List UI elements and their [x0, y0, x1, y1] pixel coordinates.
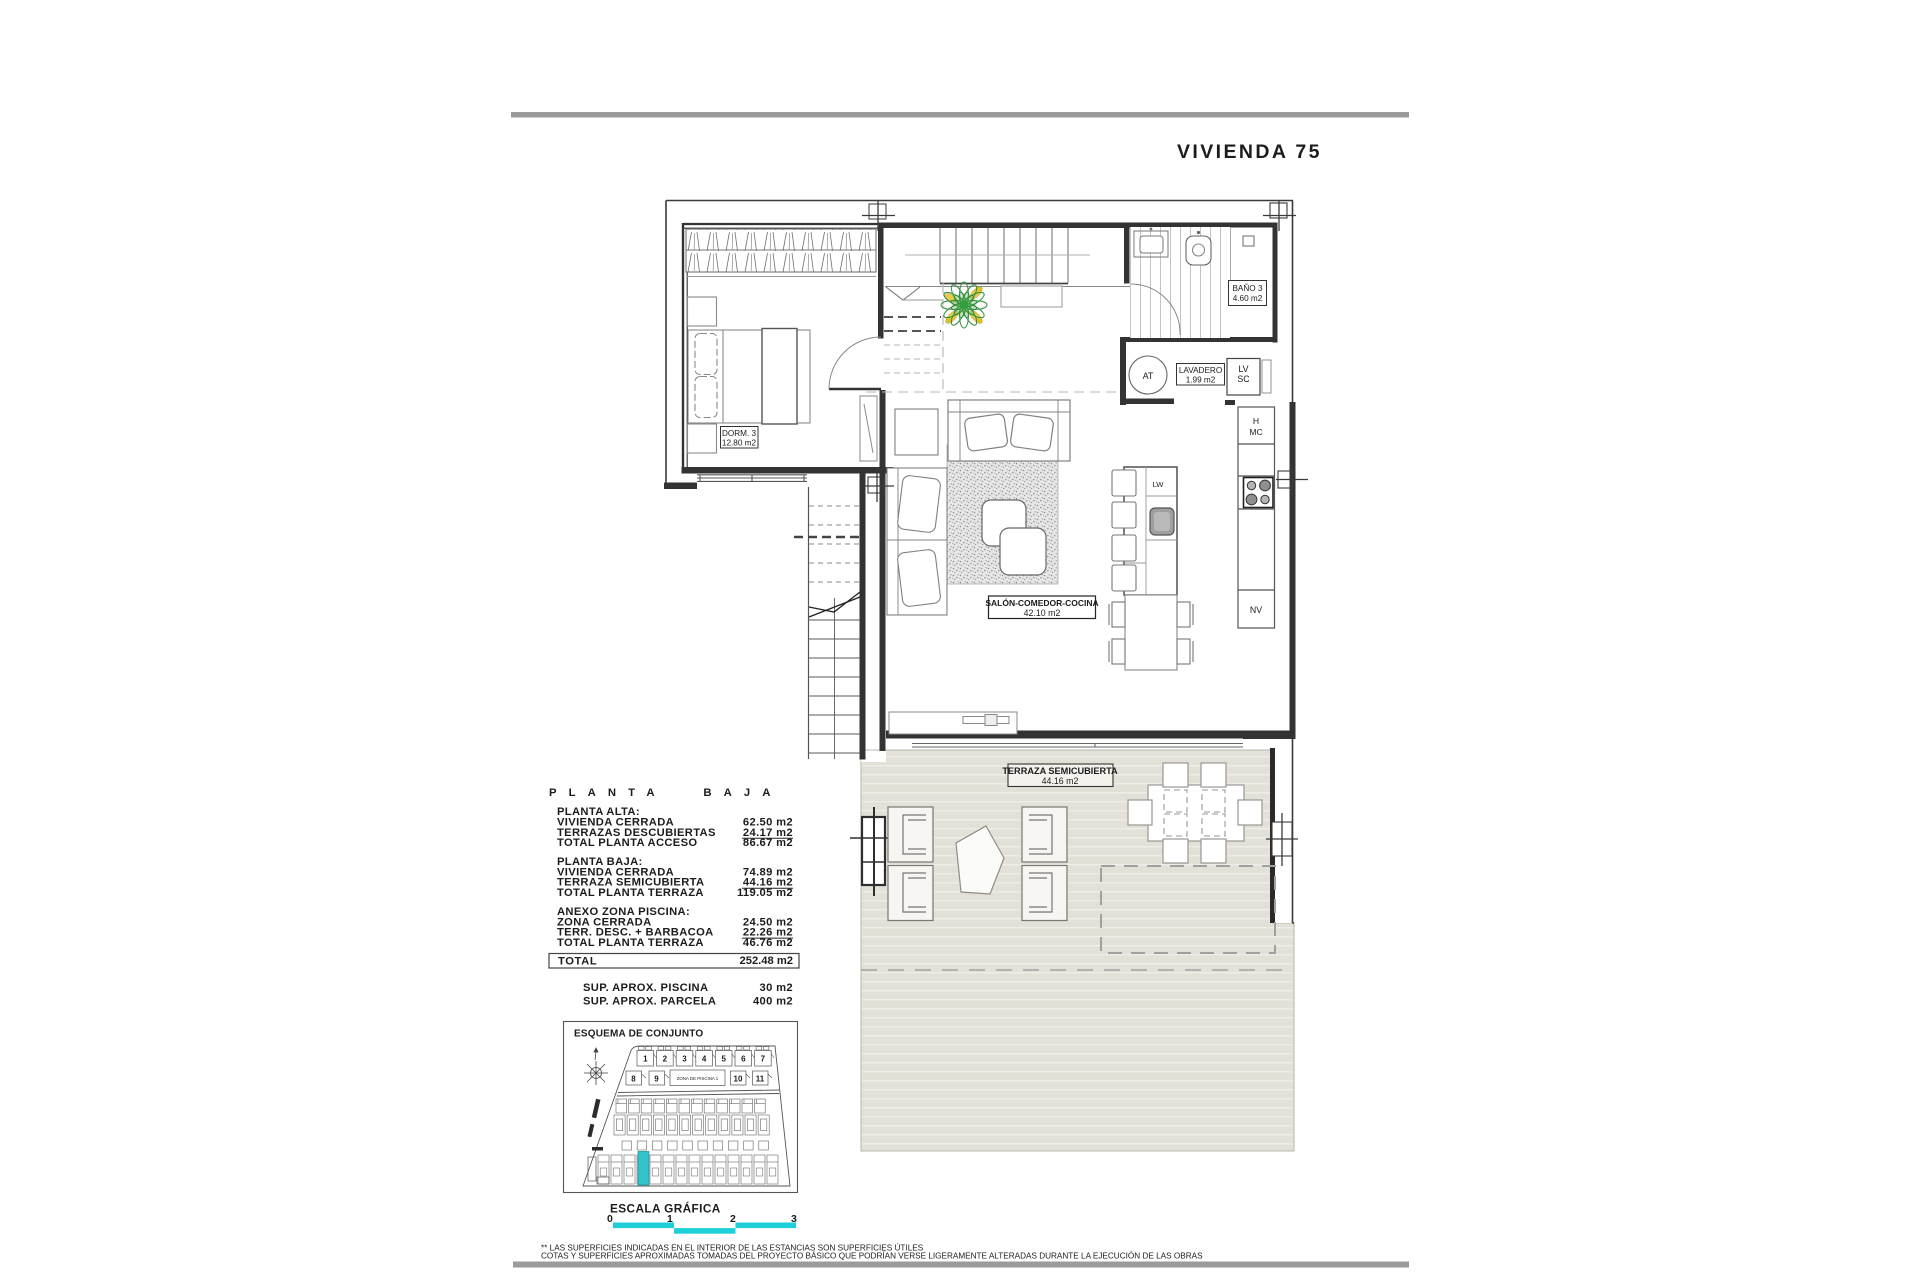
svg-text:252.48 m2: 252.48 m2: [740, 955, 794, 967]
svg-text:7: 7: [761, 1055, 766, 1064]
svg-text:ZONA DE PISCINA 1: ZONA DE PISCINA 1: [677, 1076, 719, 1081]
svg-text:2: 2: [730, 1213, 736, 1225]
svg-text:4.60 m2: 4.60 m2: [1233, 294, 1263, 303]
svg-text:BAÑO 3: BAÑO 3: [1232, 283, 1262, 293]
svg-text:6: 6: [741, 1055, 746, 1064]
svg-text:5: 5: [721, 1055, 726, 1064]
svg-text:44.16 m2: 44.16 m2: [1042, 776, 1079, 786]
svg-text:TOTAL PLANTA ACCESO: TOTAL PLANTA ACCESO: [557, 837, 697, 849]
svg-text:LW: LW: [1153, 480, 1165, 489]
svg-text:PLANTA BAJA: PLANTA BAJA: [549, 787, 783, 799]
svg-text:12.80 m2: 12.80 m2: [722, 439, 757, 448]
svg-text:ESQUEMA DE CONJUNTO: ESQUEMA DE CONJUNTO: [574, 1029, 703, 1040]
svg-text:ESCALA GRÁFICA: ESCALA GRÁFICA: [610, 1202, 721, 1216]
svg-text:9: 9: [654, 1075, 659, 1084]
svg-text:10: 10: [734, 1075, 743, 1084]
svg-text:TOTAL PLANTA TERRAZA: TOTAL PLANTA TERRAZA: [557, 937, 704, 949]
svg-text:SUP. APROX. PARCELA: SUP. APROX. PARCELA: [583, 996, 716, 1008]
svg-text:NV: NV: [1250, 605, 1262, 615]
svg-text:SC: SC: [1237, 374, 1250, 384]
svg-text:SUP. APROX. PISCINA: SUP. APROX. PISCINA: [583, 982, 708, 994]
svg-text:30 m2: 30 m2: [760, 982, 793, 994]
svg-text:3: 3: [682, 1055, 687, 1064]
svg-text:TOTAL: TOTAL: [558, 956, 597, 968]
svg-text:11: 11: [756, 1075, 765, 1084]
svg-text:VIVIENDA 75: VIVIENDA 75: [1177, 141, 1322, 163]
svg-text:1.99 m2: 1.99 m2: [1186, 376, 1216, 385]
svg-text:COTAS Y SUPERFICIES APROXIMADA: COTAS Y SUPERFICIES APROXIMADAS TOMADAS …: [541, 1251, 1203, 1261]
svg-text:2: 2: [663, 1055, 668, 1064]
svg-text:42.10 m2: 42.10 m2: [1024, 608, 1061, 618]
svg-text:LV: LV: [1238, 364, 1248, 374]
svg-text:MC: MC: [1249, 427, 1262, 437]
svg-text:8: 8: [631, 1075, 636, 1084]
svg-text:SALÓN-COMEDOR-COCINA: SALÓN-COMEDOR-COCINA: [985, 597, 1098, 608]
svg-text:400 m2: 400 m2: [753, 996, 793, 1008]
svg-text:4: 4: [702, 1055, 707, 1064]
svg-text:DORM. 3: DORM. 3: [722, 429, 757, 438]
svg-text:1: 1: [643, 1055, 648, 1064]
svg-text:TOTAL PLANTA TERRAZA: TOTAL PLANTA TERRAZA: [557, 887, 704, 899]
svg-text:AT: AT: [1143, 371, 1154, 381]
svg-text:0: 0: [607, 1213, 613, 1225]
svg-text:TERRAZA SEMICUBIERTA: TERRAZA SEMICUBIERTA: [1002, 766, 1118, 776]
svg-text:H: H: [1253, 416, 1259, 426]
svg-text:119.05 m2: 119.05 m2: [737, 887, 793, 899]
svg-text:LAVADERO: LAVADERO: [1179, 366, 1222, 375]
